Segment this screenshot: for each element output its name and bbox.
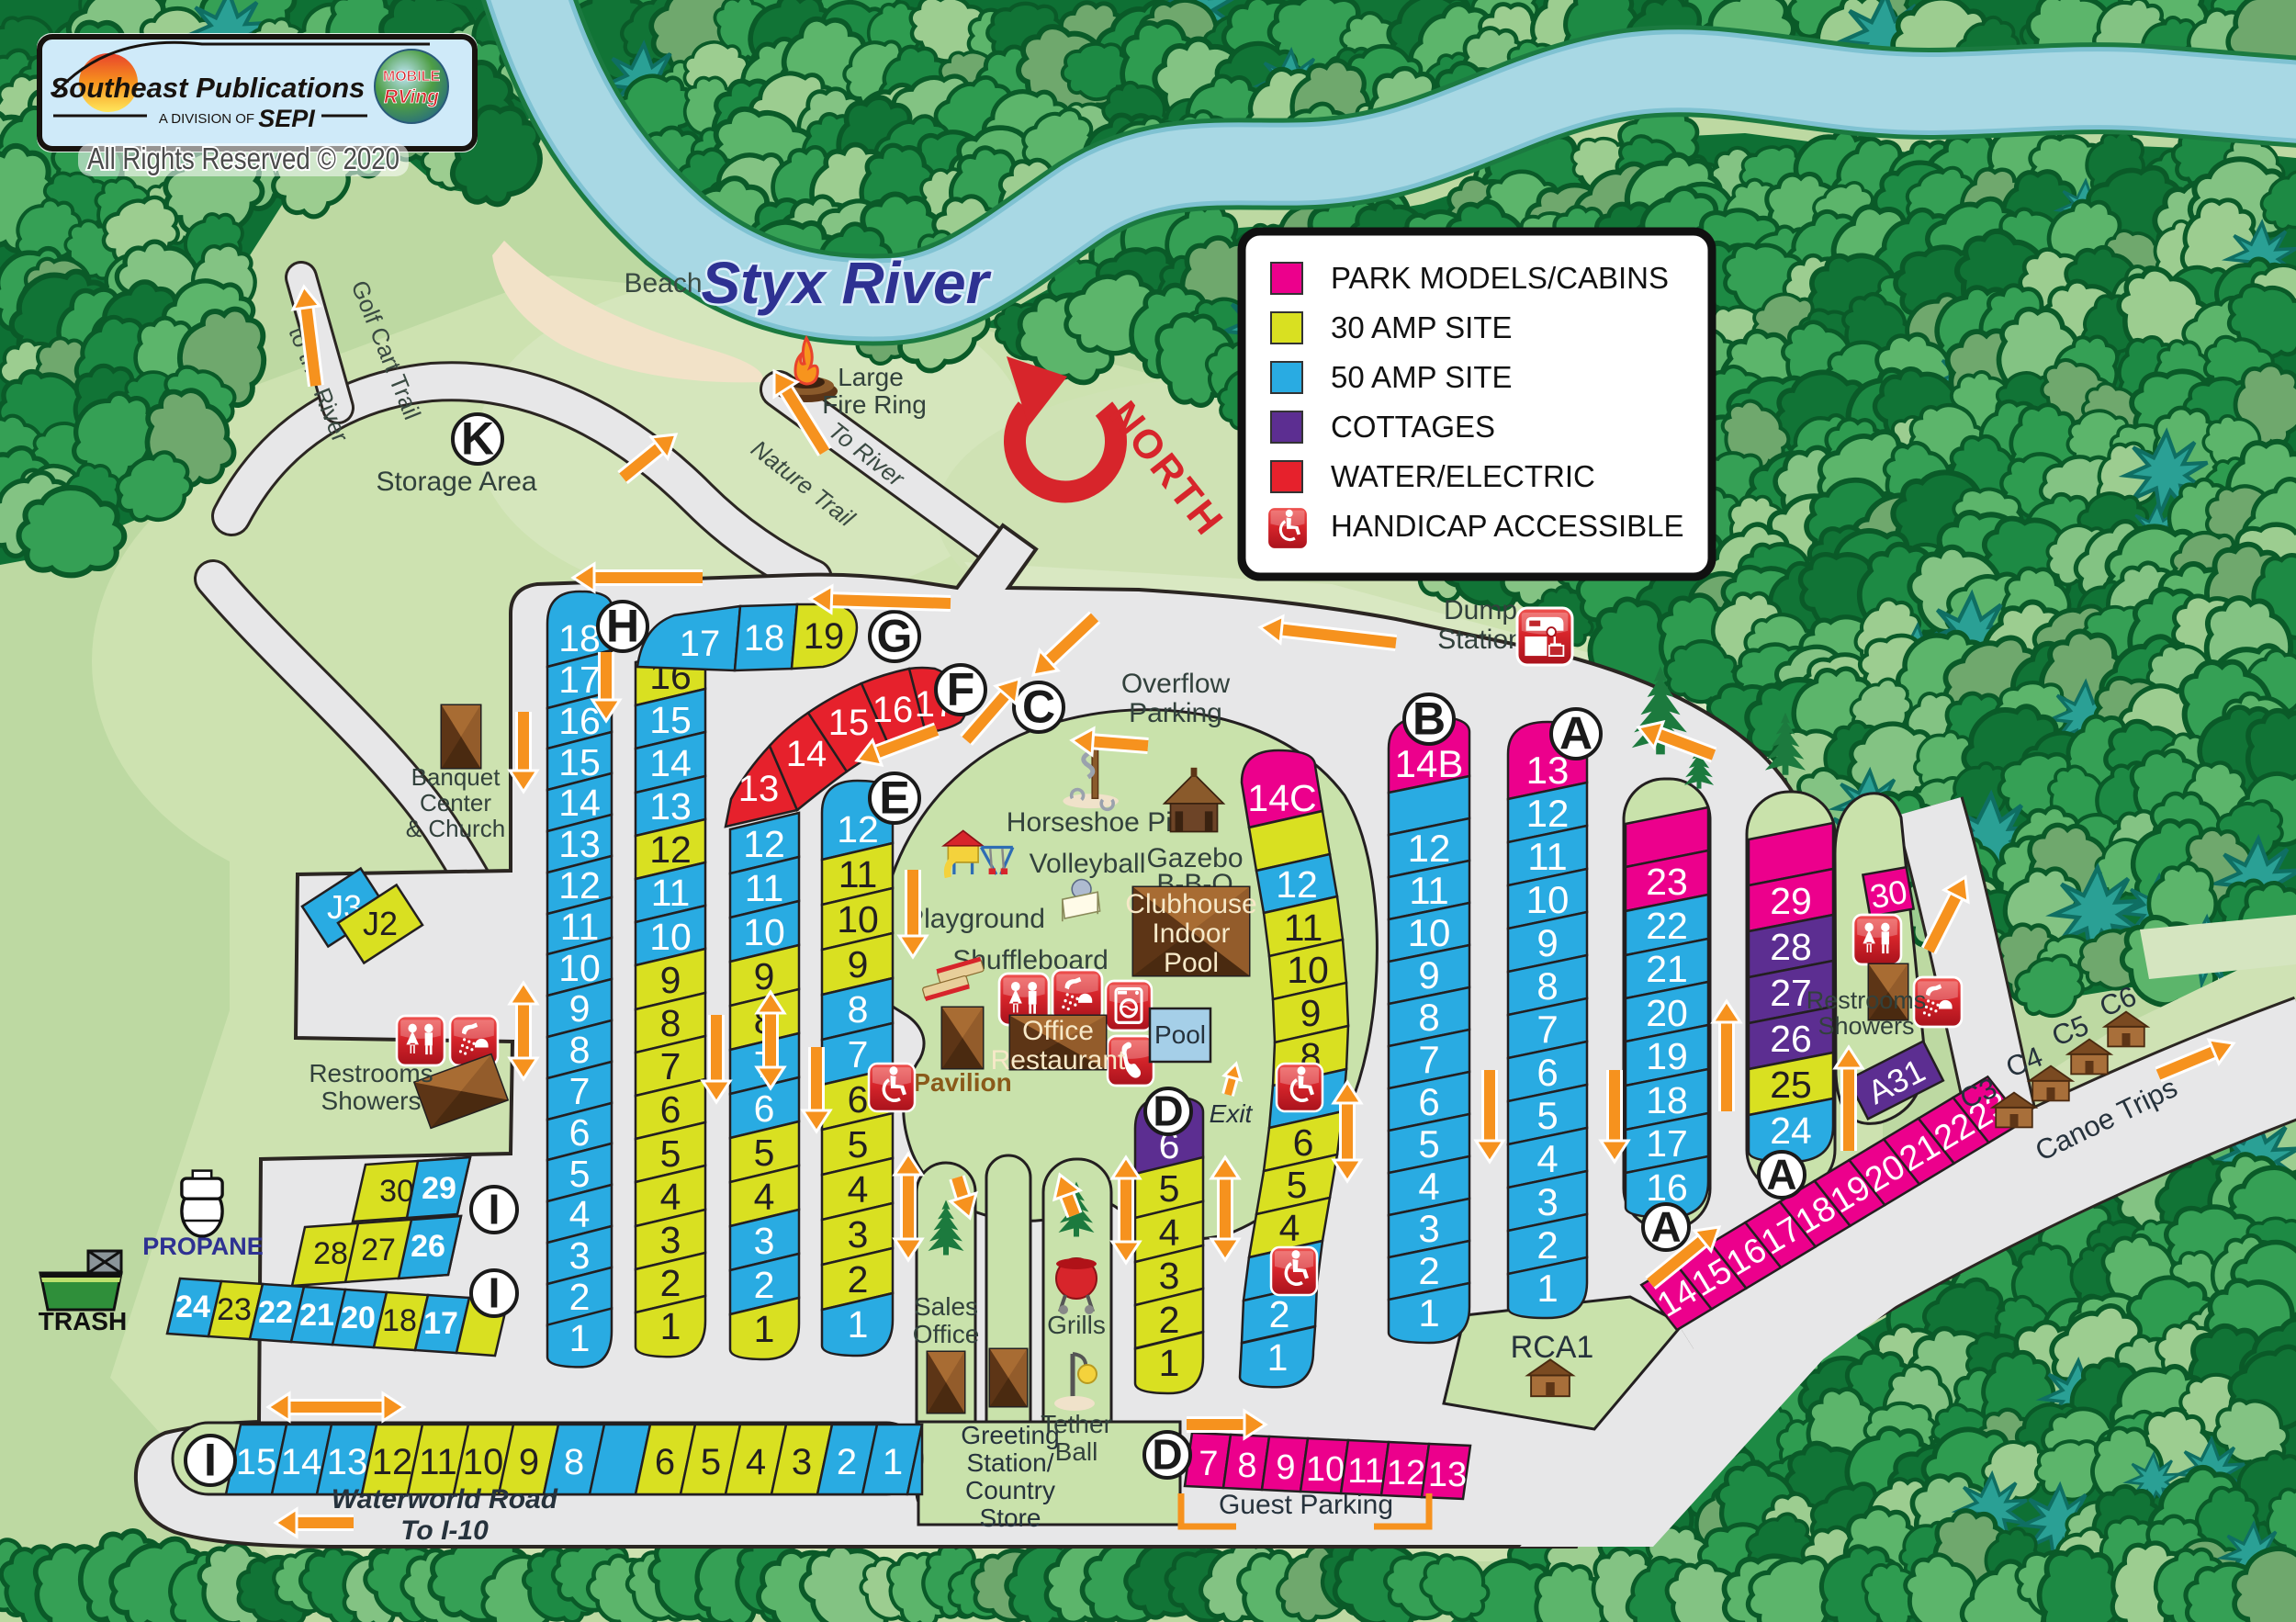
- svg-text:1: 1: [569, 1317, 591, 1359]
- svg-text:All Rights Reserved © 2020: All Rights Reserved © 2020: [87, 141, 400, 175]
- svg-text:E: E: [879, 772, 909, 824]
- svg-text:6: 6: [848, 1078, 869, 1121]
- svg-text:Exit: Exit: [1210, 1099, 1254, 1128]
- svg-text:15: 15: [828, 703, 870, 743]
- svg-text:3: 3: [792, 1442, 812, 1482]
- svg-text:4: 4: [1159, 1211, 1180, 1254]
- svg-text:5: 5: [569, 1153, 591, 1195]
- svg-text:11: 11: [745, 867, 784, 909]
- svg-text:Office: Office: [913, 1320, 980, 1348]
- svg-text:4: 4: [660, 1176, 681, 1218]
- svg-text:5: 5: [660, 1132, 681, 1175]
- svg-text:21: 21: [1646, 948, 1688, 990]
- svg-text:3: 3: [569, 1234, 591, 1277]
- svg-text:Parking: Parking: [1129, 698, 1222, 728]
- svg-text:Ball: Ball: [1055, 1437, 1098, 1466]
- svg-text:Banquet: Banquet: [411, 763, 501, 791]
- svg-text:17: 17: [680, 624, 721, 664]
- svg-text:MOBILE: MOBILE: [383, 69, 441, 84]
- svg-text:30: 30: [379, 1174, 414, 1209]
- svg-text:9: 9: [1536, 921, 1558, 964]
- svg-text:14: 14: [281, 1442, 322, 1482]
- svg-text:A: A: [1559, 708, 1593, 760]
- svg-text:2: 2: [1418, 1249, 1439, 1292]
- svg-text:20: 20: [1646, 992, 1688, 1034]
- svg-text:16: 16: [872, 690, 914, 730]
- svg-text:D: D: [1153, 1087, 1183, 1135]
- svg-text:G: G: [877, 611, 913, 662]
- svg-text:11: 11: [838, 853, 878, 895]
- svg-text:8: 8: [1536, 964, 1558, 1008]
- svg-text:& Church: & Church: [406, 815, 505, 842]
- svg-text:13: 13: [558, 823, 601, 865]
- svg-text:Restrooms: Restrooms: [1806, 986, 1927, 1014]
- svg-text:18: 18: [1646, 1079, 1688, 1121]
- svg-text:24: 24: [1770, 1109, 1812, 1152]
- svg-text:Pool: Pool: [1154, 1020, 1206, 1049]
- svg-text:1: 1: [1159, 1342, 1180, 1384]
- svg-text:3: 3: [848, 1213, 869, 1256]
- svg-text:5: 5: [1536, 1094, 1558, 1137]
- svg-text:26: 26: [1770, 1018, 1812, 1060]
- svg-text:Center: Center: [420, 789, 491, 817]
- svg-text:2: 2: [837, 1442, 857, 1482]
- svg-text:30: 30: [1867, 873, 1910, 916]
- svg-text:HANDICAP ACCESSIBLE: HANDICAP ACCESSIBLE: [1331, 509, 1684, 543]
- svg-text:2: 2: [848, 1258, 869, 1301]
- svg-text:12: 12: [1387, 1454, 1425, 1492]
- svg-text:SEPI: SEPI: [258, 105, 315, 132]
- svg-text:29: 29: [422, 1171, 456, 1206]
- svg-text:5: 5: [1159, 1167, 1180, 1210]
- svg-text:5: 5: [754, 1132, 775, 1174]
- svg-text:19: 19: [1646, 1035, 1688, 1077]
- svg-text:18: 18: [382, 1303, 417, 1338]
- svg-text:18: 18: [744, 618, 785, 659]
- svg-text:Office: Office: [1022, 1016, 1094, 1046]
- svg-text:Grills: Grills: [1047, 1311, 1106, 1339]
- svg-text:Indoor: Indoor: [1152, 918, 1230, 949]
- svg-text:9: 9: [848, 943, 869, 986]
- svg-text:23: 23: [217, 1292, 252, 1327]
- svg-text:6: 6: [754, 1087, 775, 1130]
- svg-text:Large: Large: [838, 363, 904, 391]
- svg-text:21: 21: [299, 1298, 334, 1333]
- svg-text:9: 9: [569, 987, 591, 1030]
- svg-text:Waterworld Road: Waterworld Road: [332, 1484, 558, 1515]
- svg-text:Guest Parking: Guest Parking: [1219, 1490, 1393, 1520]
- svg-text:14C: 14C: [1247, 777, 1316, 819]
- svg-text:11: 11: [1347, 1452, 1383, 1491]
- svg-text:8: 8: [1237, 1447, 1256, 1485]
- svg-text:3: 3: [1159, 1255, 1180, 1297]
- svg-text:15: 15: [236, 1442, 277, 1482]
- svg-text:6: 6: [660, 1088, 681, 1131]
- svg-text:9: 9: [660, 959, 681, 1001]
- svg-text:7: 7: [1536, 1008, 1558, 1051]
- svg-text:10: 10: [649, 916, 692, 958]
- svg-text:F: F: [947, 664, 975, 715]
- svg-text:17: 17: [558, 659, 601, 701]
- svg-text:6: 6: [1536, 1051, 1558, 1094]
- svg-text:WATER/ELECTRIC: WATER/ELECTRIC: [1331, 459, 1595, 493]
- svg-text:Station/: Station/: [967, 1448, 1054, 1477]
- svg-text:8: 8: [660, 1002, 681, 1044]
- svg-text:A: A: [1766, 1151, 1796, 1199]
- svg-text:4: 4: [848, 1168, 869, 1211]
- svg-text:11: 11: [419, 1442, 457, 1482]
- svg-text:11: 11: [1284, 907, 1323, 949]
- svg-text:Playground: Playground: [906, 904, 1045, 934]
- svg-text:RCA1: RCA1: [1511, 1330, 1594, 1365]
- svg-text:8: 8: [1418, 996, 1439, 1039]
- svg-text:23: 23: [1646, 861, 1688, 903]
- svg-text:Station: Station: [1437, 625, 1523, 655]
- svg-text:Storage Area: Storage Area: [376, 467, 536, 497]
- svg-text:10: 10: [1408, 911, 1451, 954]
- svg-text:H: H: [606, 601, 639, 652]
- svg-text:7: 7: [660, 1045, 681, 1087]
- svg-text:10: 10: [743, 911, 785, 953]
- svg-text:12: 12: [837, 808, 879, 850]
- svg-text:I: I: [204, 1435, 217, 1486]
- svg-text:3: 3: [1418, 1207, 1439, 1250]
- svg-text:Clubhouse: Clubhouse: [1125, 889, 1256, 919]
- svg-text:30 AMP SITE: 30 AMP SITE: [1331, 310, 1512, 344]
- svg-text:K: K: [461, 413, 494, 465]
- svg-text:Southeast Publications: Southeast Publications: [51, 72, 366, 104]
- svg-text:7: 7: [848, 1033, 869, 1076]
- svg-text:Restrooms: Restrooms: [309, 1059, 433, 1087]
- svg-text:12: 12: [1408, 827, 1451, 870]
- svg-text:8: 8: [569, 1029, 591, 1071]
- svg-text:1: 1: [754, 1308, 775, 1350]
- svg-text:10: 10: [463, 1442, 504, 1482]
- svg-text:10: 10: [1306, 1450, 1345, 1489]
- svg-text:1: 1: [848, 1303, 869, 1346]
- svg-text:3: 3: [660, 1219, 681, 1261]
- svg-text:6: 6: [655, 1442, 675, 1482]
- svg-text:1: 1: [660, 1305, 681, 1347]
- svg-text:9: 9: [1300, 992, 1322, 1034]
- svg-text:12: 12: [1276, 863, 1318, 906]
- svg-text:2: 2: [569, 1276, 591, 1318]
- svg-text:22: 22: [258, 1295, 293, 1330]
- svg-text:TRASH: TRASH: [39, 1307, 127, 1335]
- svg-text:RVing: RVing: [384, 86, 439, 107]
- svg-text:COTTAGES: COTTAGES: [1331, 410, 1495, 444]
- svg-text:7: 7: [569, 1070, 591, 1112]
- svg-text:6: 6: [1418, 1080, 1439, 1123]
- svg-text:5: 5: [1287, 1164, 1308, 1206]
- svg-text:2: 2: [754, 1264, 775, 1306]
- svg-text:18: 18: [558, 617, 601, 659]
- svg-text:11: 11: [1409, 869, 1449, 912]
- svg-text:4: 4: [569, 1193, 591, 1235]
- svg-text:29: 29: [1770, 880, 1812, 922]
- svg-text:8: 8: [564, 1442, 584, 1482]
- svg-text:10: 10: [1287, 949, 1329, 991]
- svg-text:5: 5: [701, 1442, 721, 1482]
- svg-text:2: 2: [660, 1262, 681, 1304]
- svg-text:14: 14: [649, 742, 692, 784]
- svg-text:10: 10: [1526, 878, 1570, 921]
- svg-text:4: 4: [1418, 1165, 1439, 1208]
- svg-text:1: 1: [1536, 1267, 1558, 1310]
- svg-text:11: 11: [1527, 835, 1568, 878]
- svg-text:15: 15: [649, 699, 692, 741]
- svg-text:8: 8: [848, 988, 869, 1031]
- svg-text:Showers: Showers: [1818, 1012, 1914, 1040]
- svg-text:4: 4: [746, 1442, 766, 1482]
- svg-text:Volleyball: Volleyball: [1030, 849, 1146, 879]
- svg-text:25: 25: [1770, 1064, 1812, 1106]
- svg-text:A DIVISION OF: A DIVISION OF: [159, 111, 254, 127]
- svg-text:Fire Ring: Fire Ring: [822, 390, 927, 419]
- svg-text:C: C: [1022, 681, 1055, 733]
- svg-text:Styx River: Styx River: [701, 250, 991, 316]
- svg-text:Tether: Tether: [1041, 1410, 1112, 1438]
- svg-text:Overflow: Overflow: [1121, 669, 1231, 699]
- svg-text:14: 14: [786, 734, 827, 774]
- svg-text:Sales: Sales: [914, 1292, 978, 1321]
- svg-text:Beach: Beach: [624, 268, 702, 298]
- svg-text:I: I: [489, 1186, 501, 1233]
- svg-text:Pavilion: Pavilion: [913, 1068, 1011, 1097]
- svg-text:28: 28: [313, 1236, 348, 1271]
- svg-text:5: 5: [848, 1123, 869, 1166]
- svg-text:4: 4: [1536, 1137, 1558, 1180]
- svg-text:12: 12: [1526, 792, 1570, 835]
- svg-text:24: 24: [175, 1290, 210, 1324]
- svg-text:27: 27: [361, 1233, 396, 1267]
- svg-text:28: 28: [1770, 926, 1812, 968]
- svg-text:Dump: Dump: [1444, 595, 1517, 625]
- svg-text:3: 3: [1536, 1180, 1558, 1223]
- svg-text:26: 26: [411, 1229, 445, 1264]
- svg-text:50 AMP SITE: 50 AMP SITE: [1331, 360, 1512, 394]
- svg-text:12: 12: [743, 823, 785, 865]
- svg-text:11: 11: [651, 872, 691, 914]
- svg-text:13: 13: [738, 769, 780, 809]
- svg-text:13: 13: [649, 785, 692, 828]
- svg-text:10: 10: [837, 898, 879, 941]
- svg-text:PARK MODELS/CABINS: PARK MODELS/CABINS: [1331, 261, 1669, 295]
- svg-text:2: 2: [1269, 1293, 1290, 1335]
- svg-text:7: 7: [1418, 1038, 1439, 1081]
- svg-text:17: 17: [423, 1306, 458, 1341]
- svg-text:6: 6: [1293, 1121, 1314, 1164]
- svg-text:1: 1: [883, 1442, 903, 1482]
- svg-text:D: D: [1152, 1431, 1182, 1479]
- svg-text:13: 13: [1428, 1456, 1467, 1494]
- svg-text:9: 9: [519, 1442, 539, 1482]
- svg-text:B: B: [1412, 693, 1446, 745]
- svg-text:Horseshoe Pit: Horseshoe Pit: [1007, 807, 1180, 838]
- svg-text:9: 9: [1276, 1448, 1295, 1487]
- svg-text:7: 7: [1199, 1445, 1218, 1483]
- svg-text:12: 12: [372, 1442, 413, 1482]
- svg-text:9: 9: [1418, 953, 1439, 997]
- svg-text:13: 13: [327, 1442, 368, 1482]
- svg-text:2: 2: [1536, 1223, 1558, 1267]
- svg-text:19: 19: [804, 616, 845, 657]
- svg-text:Store: Store: [980, 1504, 1041, 1532]
- svg-text:J2: J2: [363, 905, 398, 942]
- svg-text:14: 14: [558, 782, 601, 824]
- svg-text:20: 20: [341, 1301, 376, 1335]
- svg-text:17: 17: [1646, 1122, 1688, 1165]
- svg-text:Country: Country: [965, 1476, 1055, 1504]
- svg-text:I: I: [489, 1269, 501, 1317]
- svg-text:To I-10: To I-10: [400, 1515, 489, 1546]
- svg-text:Pool: Pool: [1164, 948, 1219, 978]
- svg-text:Showers: Showers: [321, 1087, 422, 1115]
- svg-text:3: 3: [754, 1220, 775, 1262]
- svg-text:12: 12: [558, 864, 601, 907]
- svg-text:2: 2: [1159, 1299, 1180, 1341]
- svg-text:1: 1: [1418, 1291, 1439, 1335]
- svg-text:6: 6: [569, 1111, 591, 1154]
- svg-text:4: 4: [754, 1176, 775, 1218]
- svg-text:A: A: [1650, 1203, 1681, 1251]
- svg-text:1: 1: [1267, 1336, 1289, 1379]
- svg-text:22: 22: [1646, 905, 1688, 947]
- svg-text:12: 12: [649, 828, 692, 871]
- svg-text:PROPANE: PROPANE: [142, 1233, 264, 1260]
- svg-text:5: 5: [1418, 1122, 1439, 1166]
- svg-text:4: 4: [1279, 1207, 1300, 1249]
